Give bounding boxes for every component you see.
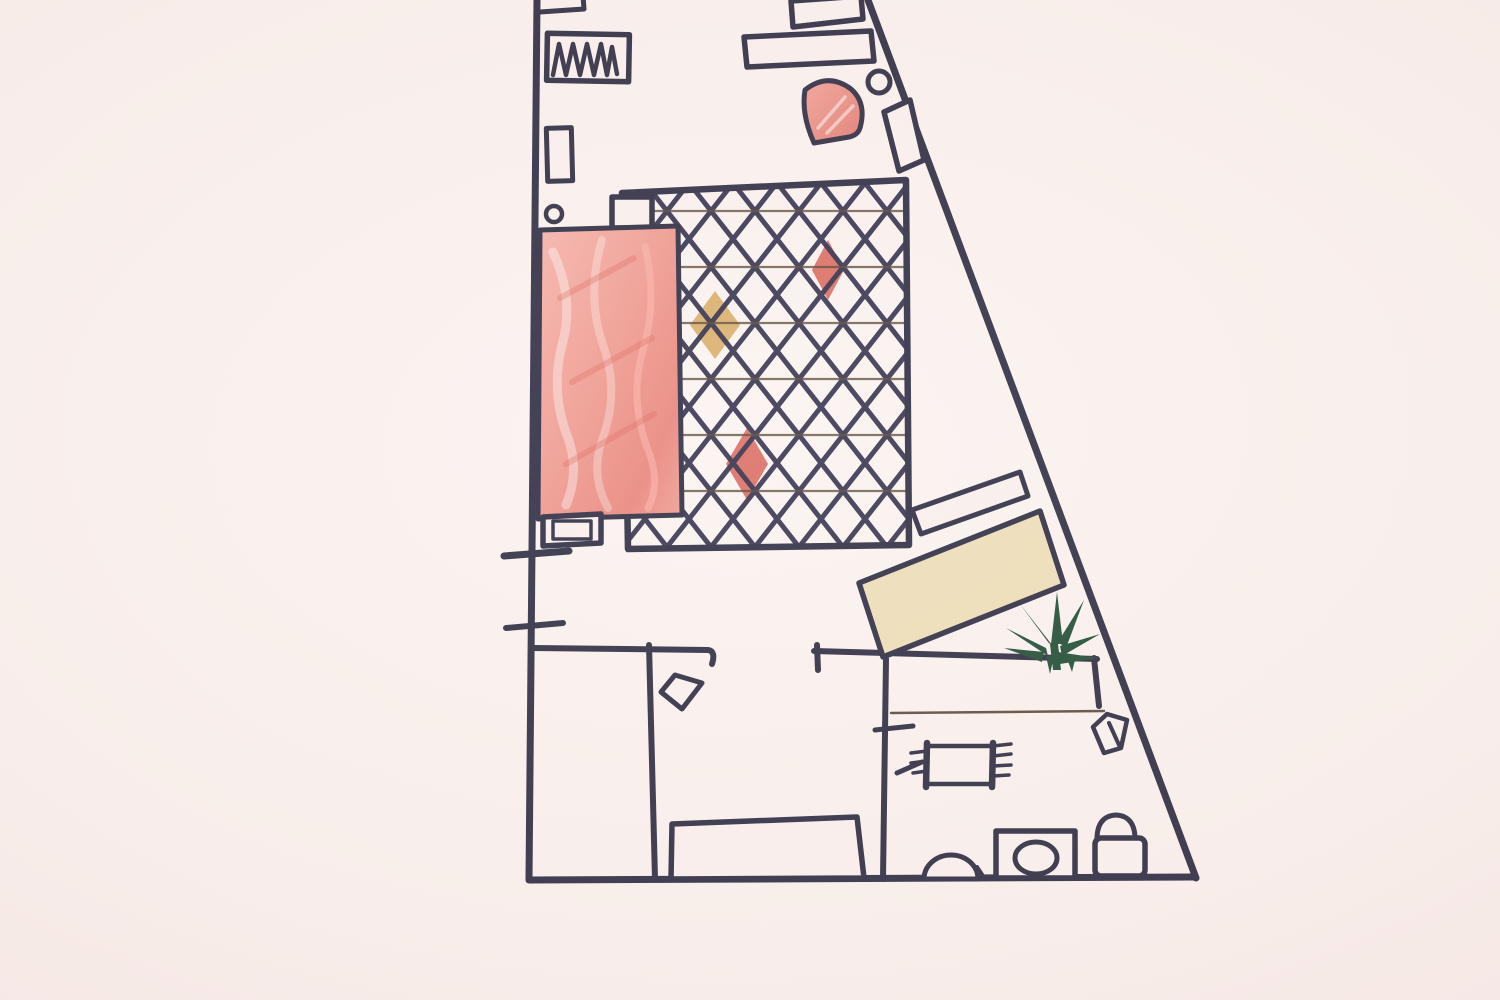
- floorplan-photo: [0, 0, 1500, 1000]
- entry-door-panel: [884, 100, 924, 171]
- bath-door-swing-inner: [1109, 723, 1119, 745]
- washing-machine: [996, 831, 1075, 878]
- hall-wall-left: [533, 648, 713, 664]
- plant-root-right: [1066, 656, 1076, 672]
- toilet-bowl: [1095, 838, 1145, 876]
- bath-door-swing: [1093, 714, 1127, 753]
- plant-leaf-up: [1051, 592, 1063, 644]
- bathroom-wall: [883, 659, 886, 879]
- bathroom-right-wall-stub: [1094, 658, 1099, 706]
- door-swing-square: [661, 675, 702, 709]
- bench: [671, 817, 864, 879]
- left-wall: [529, 0, 537, 879]
- bath-mat: [927, 746, 993, 784]
- bathroom-wall-tick: [875, 726, 913, 730]
- wall-cabinet-small: [546, 128, 572, 182]
- window-tick-lower: [506, 623, 563, 628]
- rug-corner-box: [612, 197, 652, 228]
- hall-wall-right-jamb: [817, 645, 818, 670]
- door-hinge-circle-left: [546, 206, 562, 222]
- room-divider-wall: [649, 645, 655, 879]
- window-tick-upper: [504, 551, 569, 556]
- bathroom-counter-line: [891, 711, 1104, 713]
- plant-leaf-upper-left: [1020, 604, 1056, 650]
- sideboard: [744, 31, 874, 67]
- top-right-cabinet: [791, 0, 863, 27]
- sink: [924, 855, 978, 879]
- door-hinge-circle-right: [868, 71, 890, 93]
- top-wall-shelf: [540, 0, 584, 12]
- floorplan-svg: [0, 0, 1500, 1000]
